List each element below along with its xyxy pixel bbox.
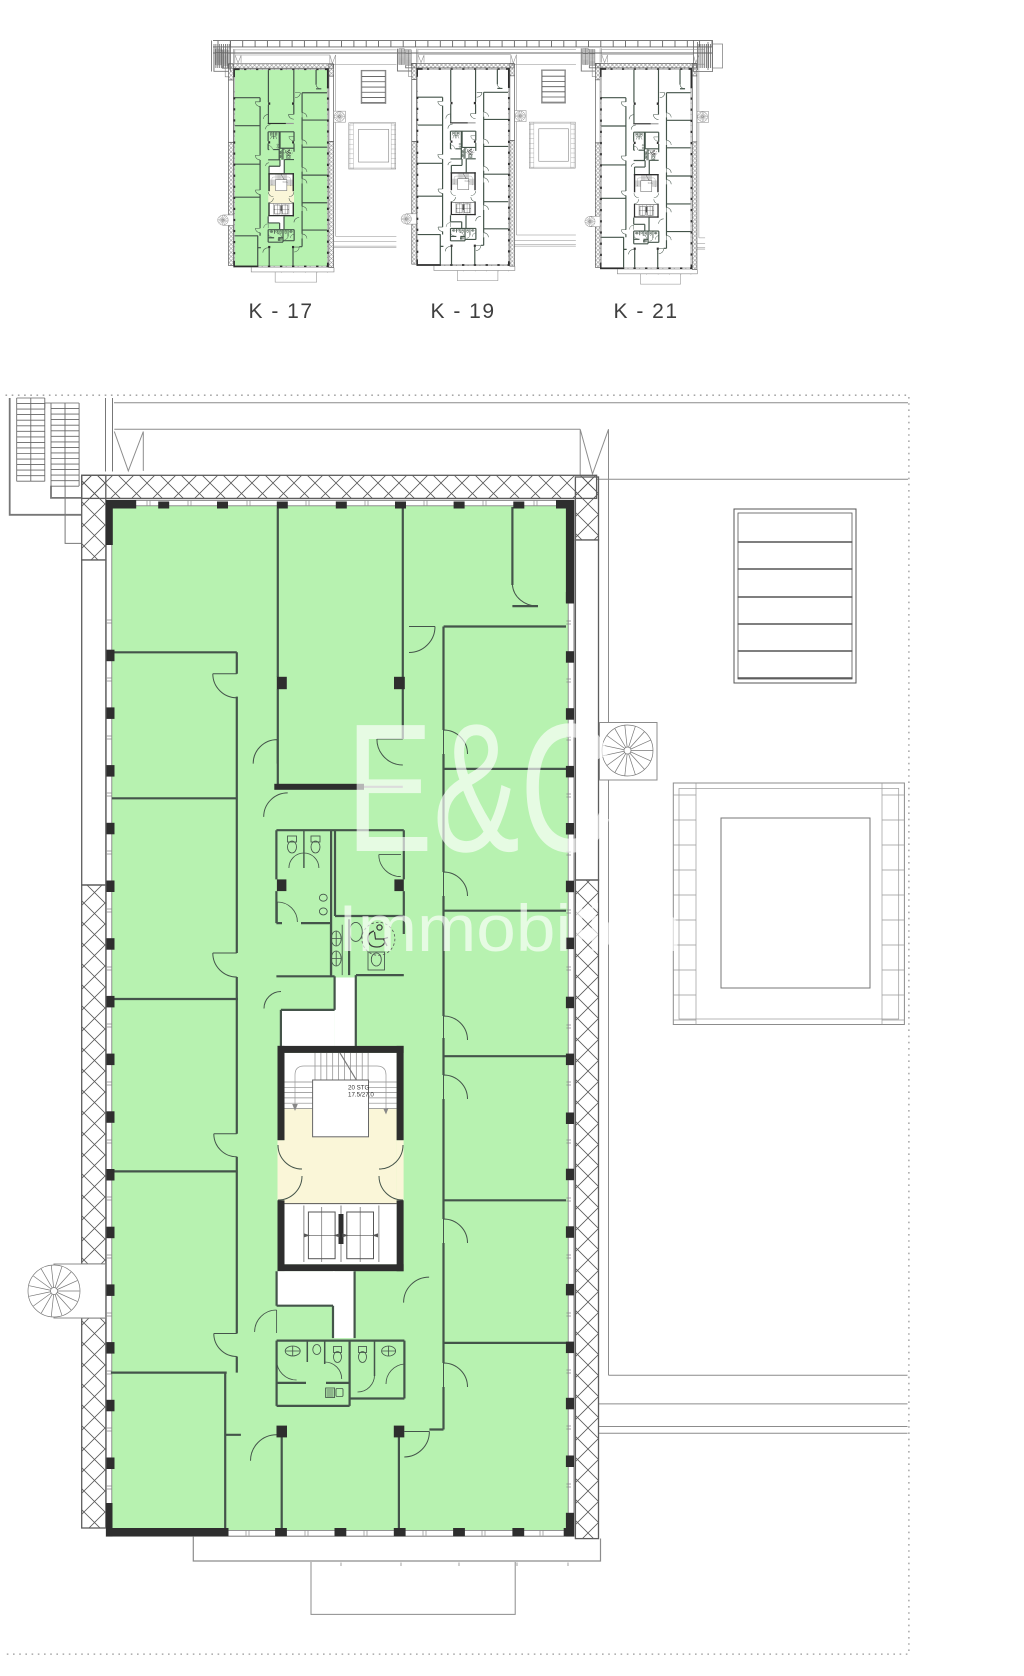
svg-text:E&C: E&C — [346, 685, 614, 890]
svg-text:20 STG: 20 STG — [348, 1085, 370, 1092]
svg-text:K - 19: K - 19 — [430, 300, 495, 323]
svg-text:K - 21: K - 21 — [613, 300, 678, 323]
svg-text:17.5/27.0: 17.5/27.0 — [348, 1092, 374, 1099]
svg-text:Immobilien: Immobilien — [338, 891, 682, 965]
svg-text:K - 17: K - 17 — [248, 300, 313, 323]
